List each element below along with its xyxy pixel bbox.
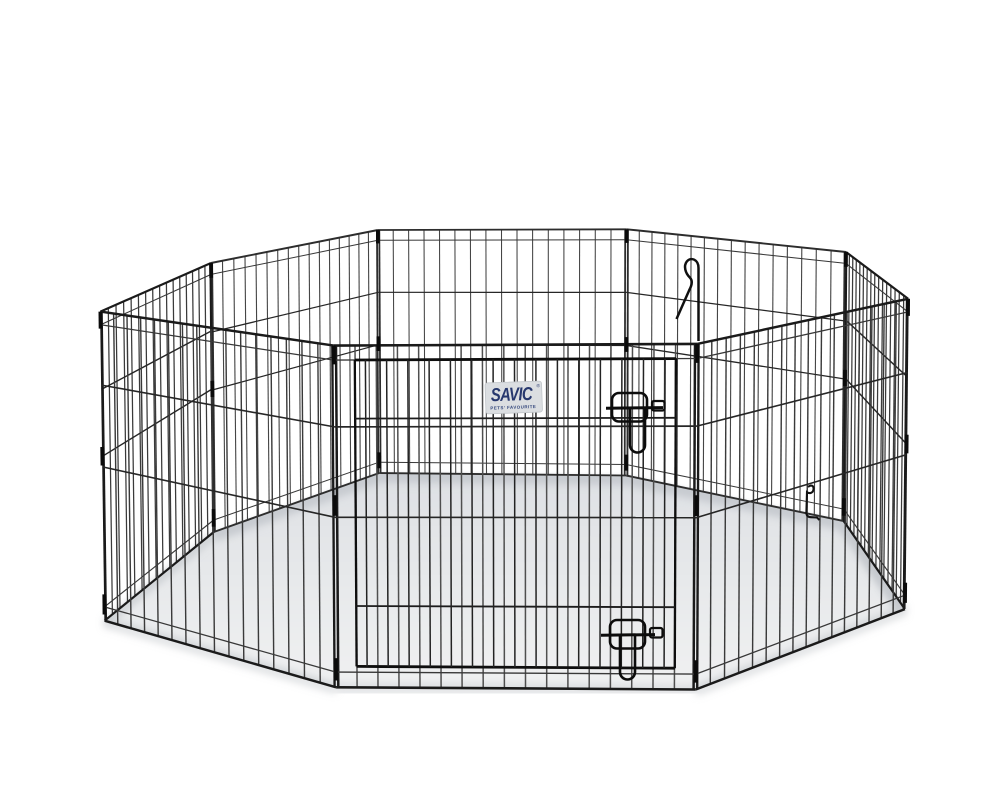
svg-text:SAVIC: SAVIC (490, 383, 533, 405)
